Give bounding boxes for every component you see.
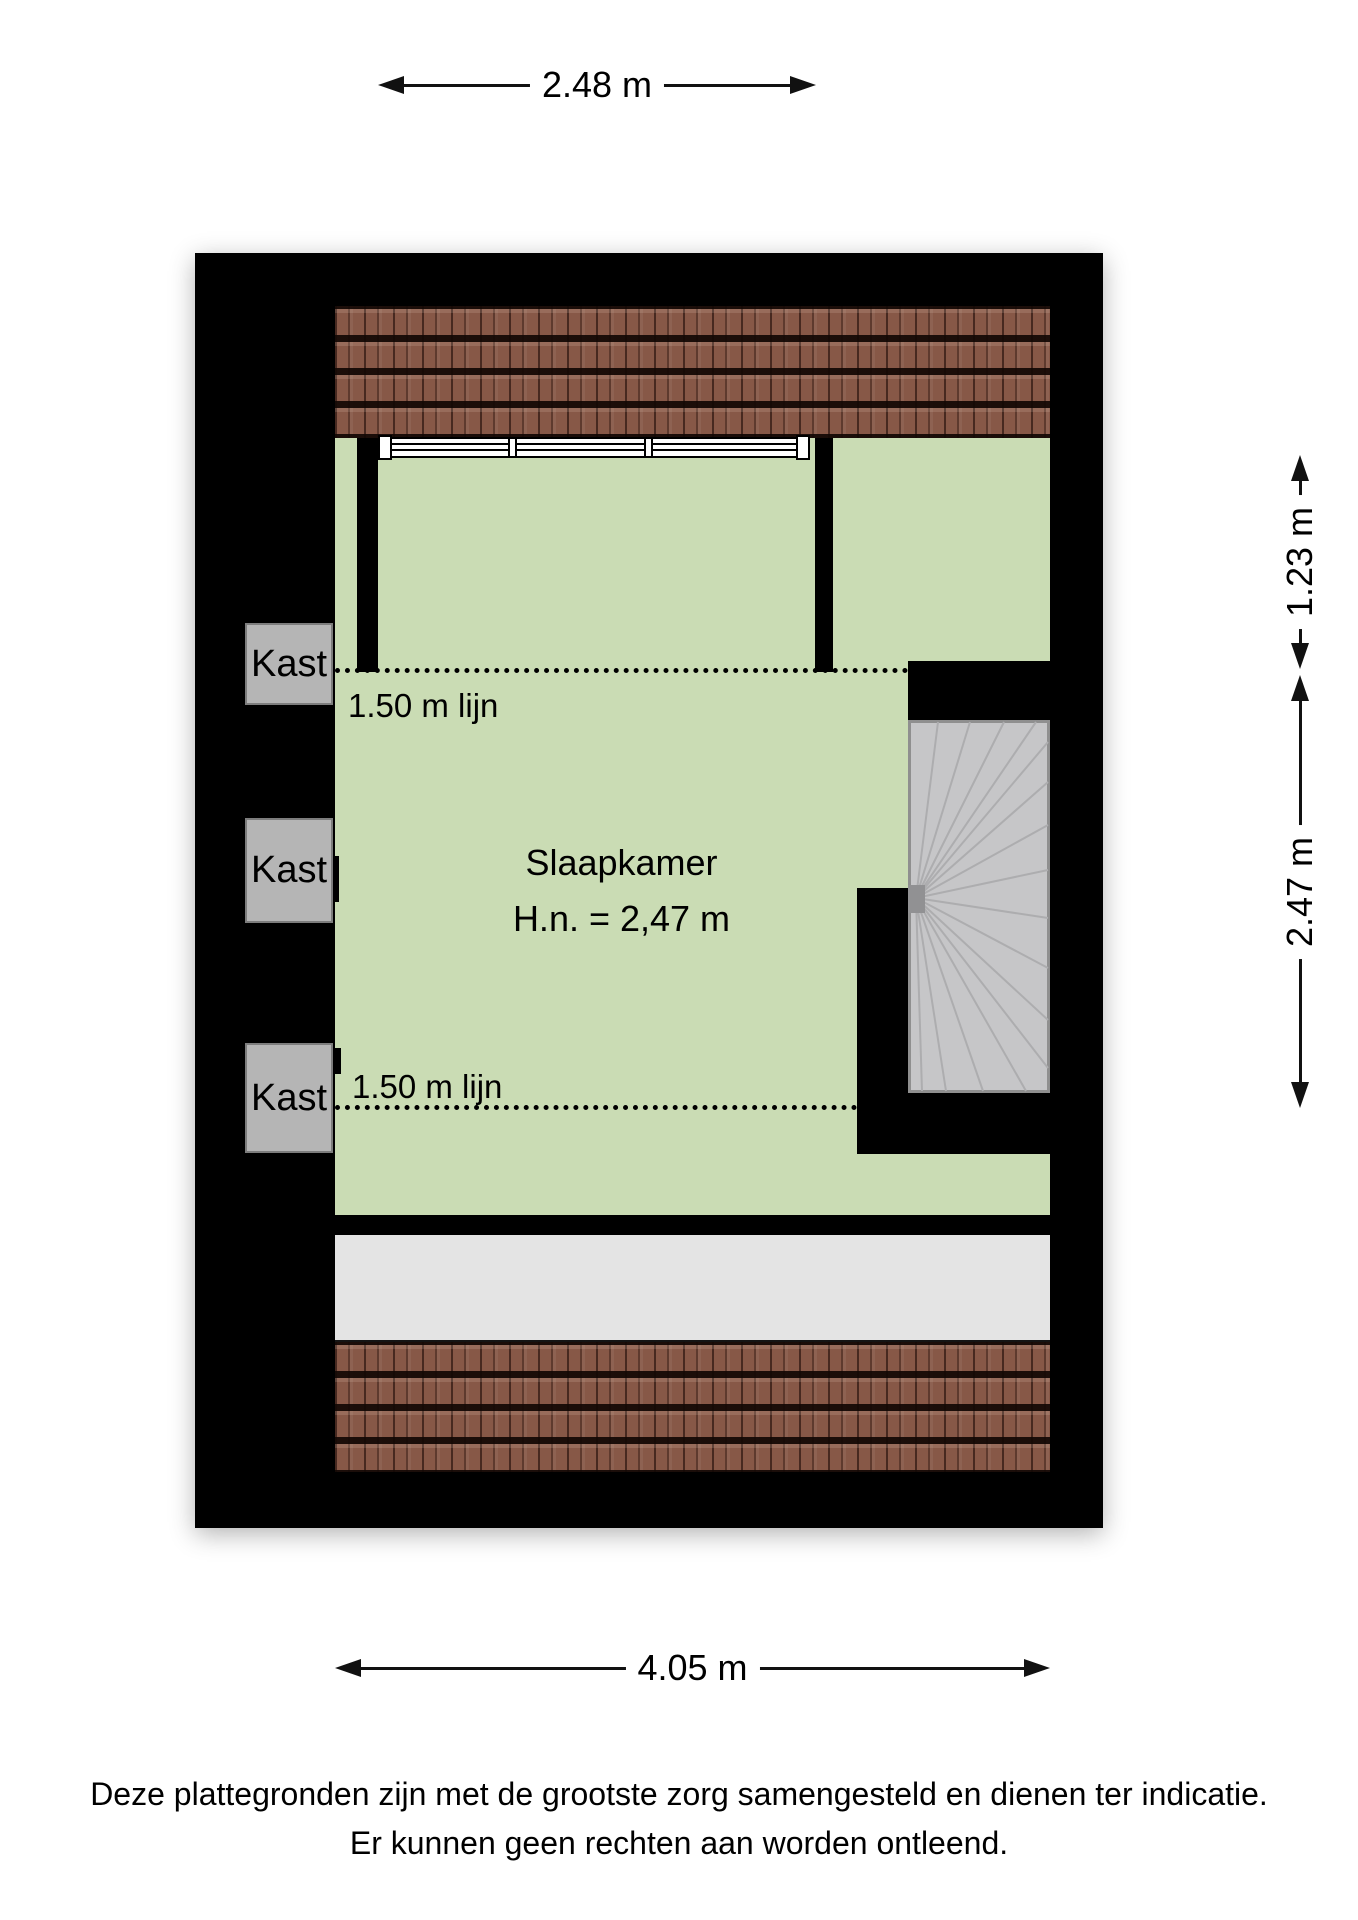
- closet-1: Kast: [245, 623, 333, 705]
- window-frame-line: [382, 449, 808, 451]
- height-line-1: [335, 668, 908, 673]
- dimension-label-bottom: 4.05 m: [625, 1648, 759, 1688]
- landing-strip: [335, 1235, 1050, 1340]
- window-wall-stub-left: [357, 438, 378, 672]
- stair-top-wall: [908, 661, 1050, 720]
- arrow-up-icon: [1291, 675, 1309, 701]
- room-label: Slaapkamer H.n. = 2,47 m: [335, 845, 908, 937]
- arrow-right-icon: [1024, 1659, 1050, 1677]
- window-divider: [644, 437, 653, 458]
- window-end-cap-right: [796, 435, 810, 460]
- closet-3: Kast: [245, 1043, 333, 1153]
- arrow-down-icon: [1291, 1082, 1309, 1108]
- dormer-window: [380, 437, 810, 458]
- closet-3-label: Kast: [251, 1077, 327, 1120]
- arrow-right-icon: [790, 76, 816, 94]
- roof-tiles-top: [335, 306, 1050, 440]
- window-wall-stub-right: [815, 438, 833, 672]
- spiral-staircase-drawing: [908, 720, 1050, 1093]
- room-height-note: H.n. = 2,47 m: [335, 901, 908, 937]
- bottom-inner-wall: [335, 1215, 1050, 1235]
- closet-3-wall-tick: [333, 1048, 341, 1074]
- roof-tiles-bottom: [335, 1340, 1050, 1472]
- arrow-left-icon: [335, 1659, 361, 1677]
- window-frame-line: [382, 443, 808, 445]
- stair-bottom-wall: [908, 1093, 1050, 1154]
- room-name: Slaapkamer: [335, 845, 908, 881]
- height-line-1-label: 1.50 m lijn: [348, 689, 498, 722]
- arrow-down-icon: [1291, 643, 1309, 669]
- window-end-cap-left: [378, 435, 392, 460]
- disclaimer-line-2: Er kunnen geen rechten aan worden ontlee…: [0, 1819, 1358, 1868]
- disclaimer: Deze plattegronden zijn met de grootste …: [0, 1770, 1358, 1868]
- spiral-staircase: [908, 720, 1050, 1093]
- dimension-label-right-lower: 2.47 m: [1280, 824, 1320, 958]
- dimension-label-top: 2.48 m: [530, 65, 664, 105]
- closet-2-wall-tick: [333, 856, 339, 902]
- height-line-2-label: 1.50 m lijn: [352, 1070, 502, 1103]
- floorplan-page: 2.48 m: [0, 0, 1358, 1920]
- closet-2-label: Kast: [251, 849, 327, 892]
- closet-1-label: Kast: [251, 643, 327, 686]
- stair-newel: [908, 885, 925, 913]
- dimension-label-right-upper: 1.23 m: [1280, 495, 1320, 629]
- window-divider: [508, 437, 517, 458]
- closet-2: Kast: [245, 818, 333, 923]
- height-line-2: [335, 1105, 857, 1110]
- arrow-up-icon: [1291, 455, 1309, 481]
- arrow-left-icon: [378, 76, 404, 94]
- disclaimer-line-1: Deze plattegronden zijn met de grootste …: [0, 1770, 1358, 1819]
